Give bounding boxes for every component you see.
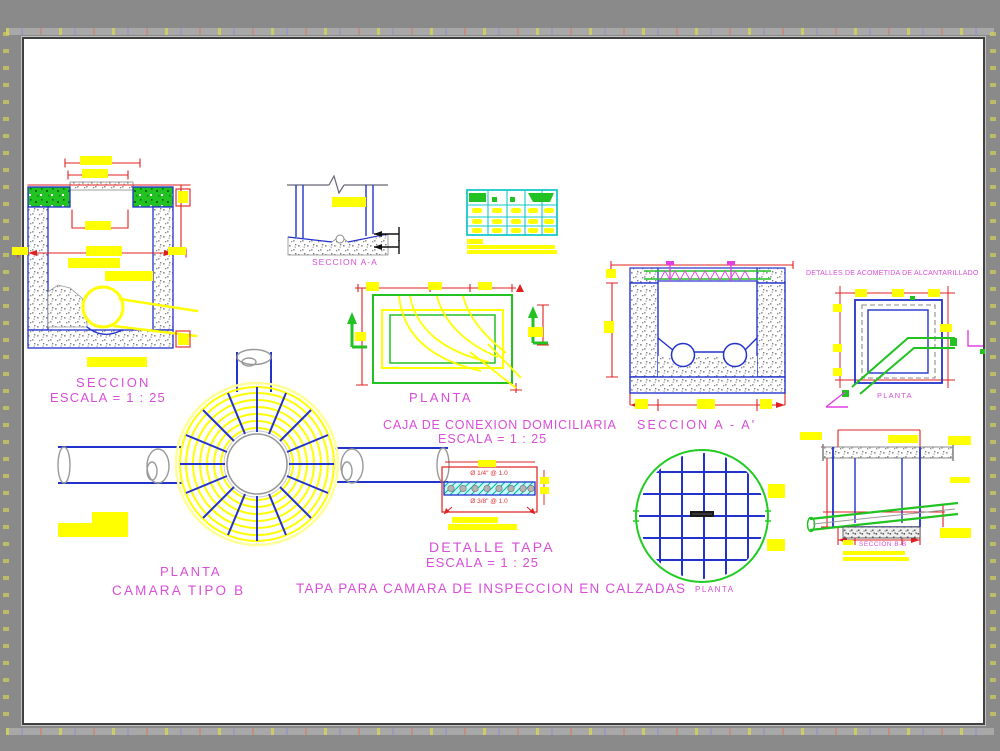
rebar-top-note: Ø 1/4" @ 1.0 <box>450 470 528 477</box>
tapa-calzadas-title: TAPA PARA CAMARA DE INSPECCION EN CALZAD… <box>296 582 686 596</box>
bottom-speck-strip <box>6 728 994 735</box>
drawing-tapa-planta <box>626 440 788 595</box>
camara-tipo-b-title: CAMARA TIPO B <box>112 584 245 598</box>
cad-viewer-screen: SECCION ESCALA = 1 : 25 SECCION A-A PLAN… <box>0 0 1000 751</box>
seccion-camara-scale: ESCALA = 1 : 25 <box>50 391 166 405</box>
detalle-tapa-title: DETALLE TAPA <box>429 540 555 555</box>
detalle-tapa-scale: ESCALA = 1 : 25 <box>426 556 539 570</box>
annotation-block <box>58 523 128 537</box>
caja-title: CAJA DE CONEXION DOMICILIARIA <box>383 419 617 432</box>
seccion-bb-label: SECCION B-B <box>859 542 907 549</box>
seccion-a-a-label: SECCION A - A' <box>637 419 756 432</box>
seccion-camara-title: SECCION <box>76 376 151 390</box>
seccion-aa-detail-label: SECCION A-A <box>312 258 378 267</box>
drawing-data-table <box>463 188 563 254</box>
drawing-seccion-a-a <box>600 255 800 415</box>
rebar-bottom-note: Ø 3/8" @ 1.0 <box>450 498 528 505</box>
caja-scale: ESCALA = 1 : 25 <box>438 433 547 446</box>
left-speck-strip <box>3 32 9 728</box>
top-speck-strip <box>6 28 994 35</box>
tapa-planta-label: PLANTA <box>695 586 735 594</box>
acometida-title: DETALLES DE ACOMETIDA DE ALCANTARILLADO <box>806 270 978 277</box>
camara-planta-label: PLANTA <box>160 565 222 579</box>
caja-planta-label: PLANTA <box>409 391 473 405</box>
acometida-planta-label: PLANTA <box>877 392 913 400</box>
drawing-seccion-aa-detail <box>278 170 408 270</box>
drawing-acometida-planta <box>803 283 998 408</box>
